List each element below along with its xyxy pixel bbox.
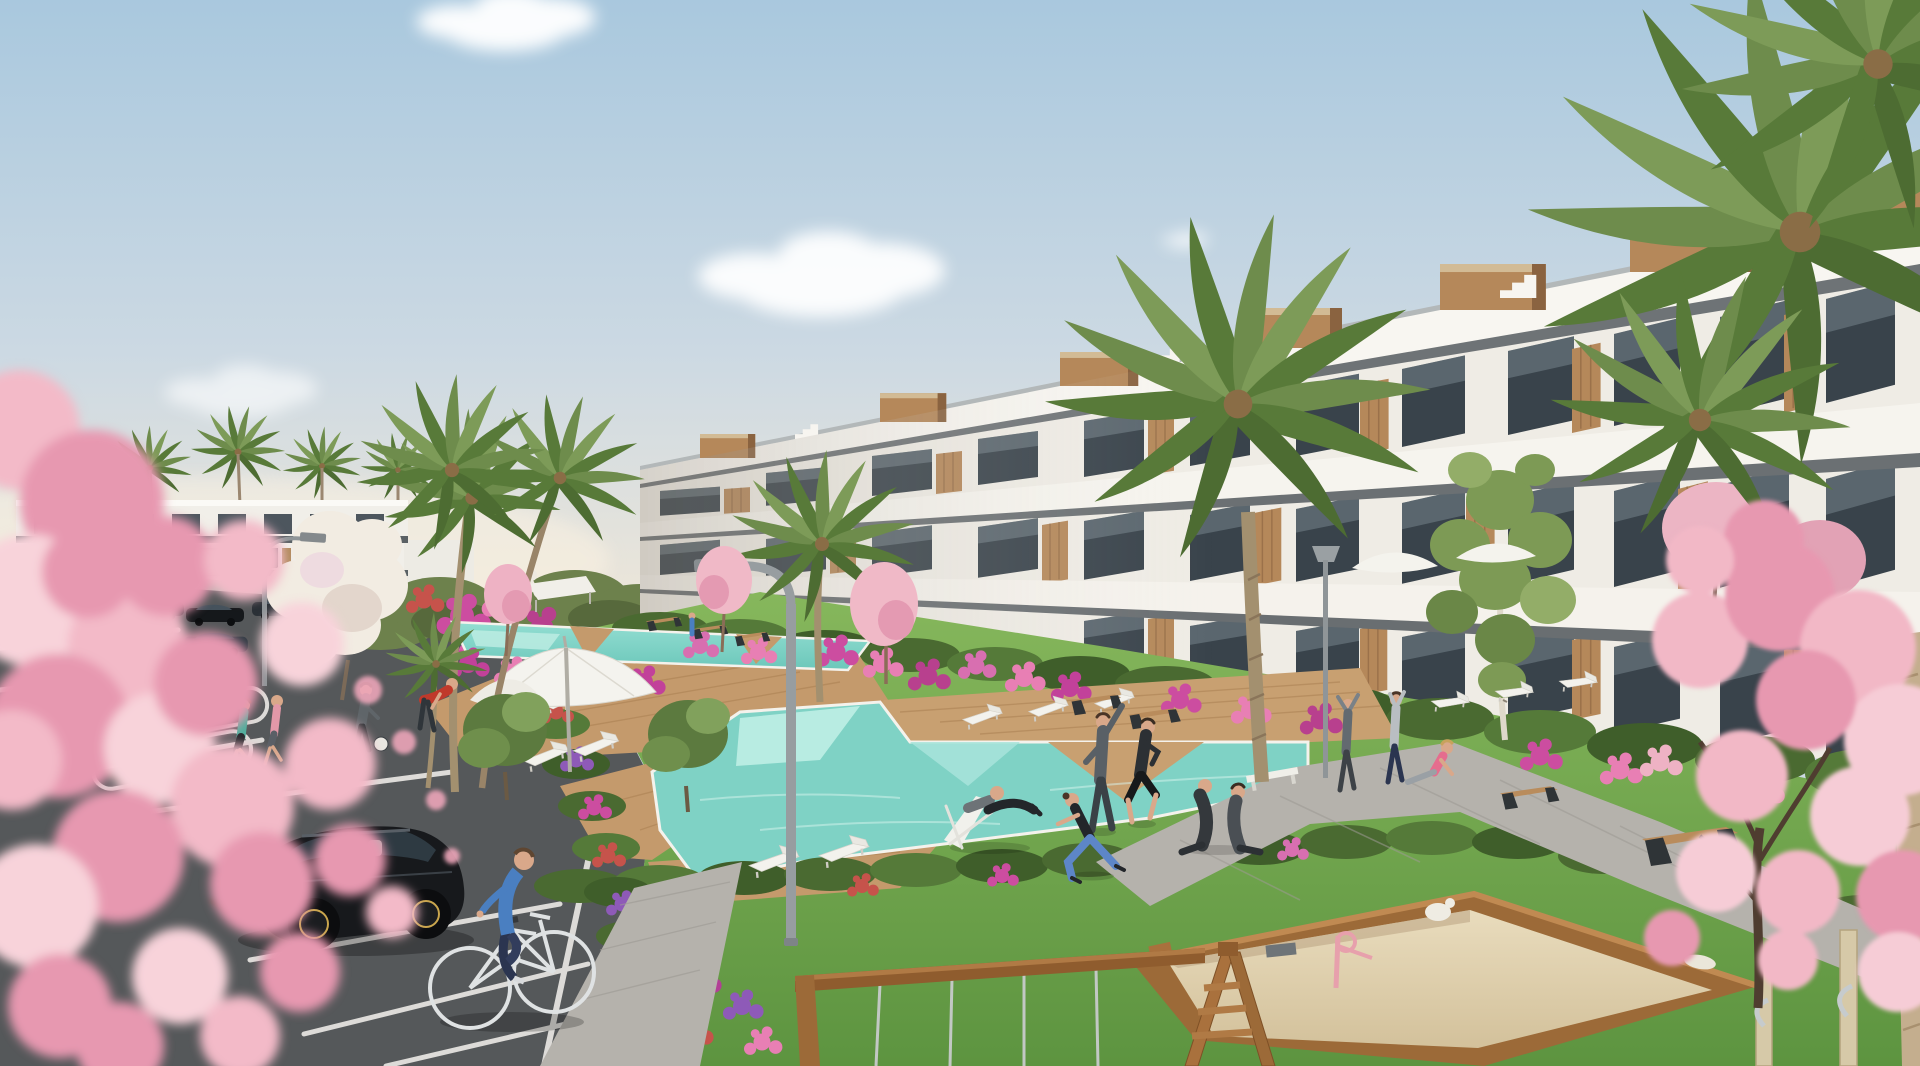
- render-canvas: [0, 0, 1920, 1066]
- scene-svg: [0, 0, 1920, 1066]
- distant-walker: [689, 613, 696, 635]
